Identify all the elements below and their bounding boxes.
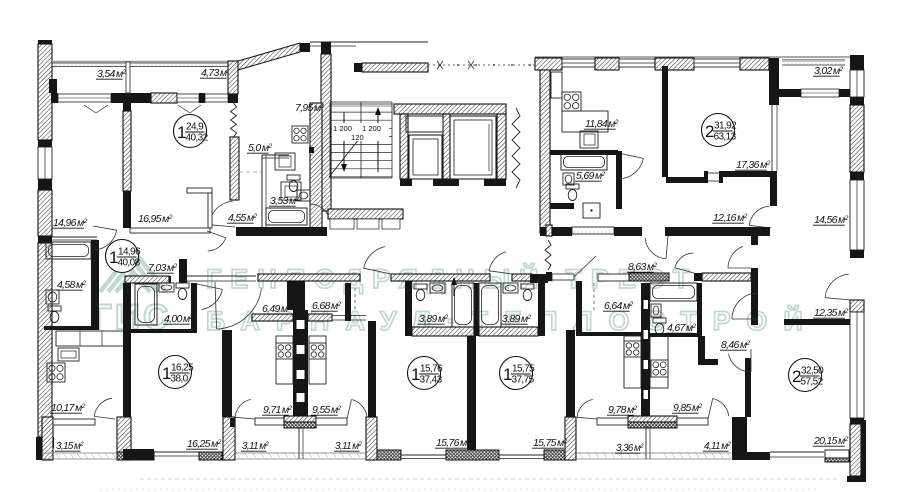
svg-text:1 200: 1 200: [333, 124, 352, 133]
svg-text:3,54 м2: 3,54 м2: [97, 68, 127, 80]
svg-text:15,76 м2: 15,76 м2: [436, 437, 471, 449]
svg-text:3,89 м2: 3,89 м2: [502, 313, 532, 325]
svg-text:4,67 м2: 4,67 м2: [667, 322, 697, 334]
svg-text:3,02 м2: 3,02 м2: [814, 65, 844, 77]
svg-text:3,15 м2: 3,15 м2: [56, 441, 84, 452]
svg-text:3,11 м2: 3,11 м2: [335, 441, 362, 452]
svg-text:10,17 м2: 10,17 м2: [51, 402, 86, 414]
svg-text:15,76: 15,76: [420, 364, 443, 375]
svg-text:9,78 м2: 9,78 м2: [608, 404, 638, 416]
svg-text:6,64 м2: 6,64 м2: [604, 300, 634, 312]
svg-text:17,36 м2: 17,36 м2: [736, 159, 771, 171]
svg-text:14,96 м2: 14,96 м2: [53, 217, 88, 229]
svg-text:15,75: 15,75: [512, 364, 535, 375]
svg-text:3,89 м2: 3,89 м2: [419, 313, 449, 325]
svg-text:15,75 м2: 15,75 м2: [533, 437, 568, 449]
svg-text:4,58 м2: 4,58 м2: [57, 279, 87, 291]
svg-text:12,16 м2: 12,16 м2: [713, 212, 748, 224]
svg-text:37,43: 37,43: [420, 375, 443, 386]
svg-text:4,73 м2: 4,73 м2: [201, 67, 231, 79]
svg-text:4,55 м2: 4,55 м2: [228, 212, 258, 224]
svg-text:6,68 м2: 6,68 м2: [312, 300, 342, 312]
svg-text:57,52: 57,52: [801, 377, 824, 388]
svg-text:9,55 м2: 9,55 м2: [312, 404, 342, 416]
svg-text:7,95 м2: 7,95 м2: [295, 102, 325, 114]
svg-text:9,71 м2: 9,71 м2: [263, 404, 293, 416]
svg-text:16,25 м2: 16,25 м2: [187, 438, 222, 450]
svg-text:7,03 м2: 7,03 м2: [148, 262, 178, 274]
svg-text:9,85 м2: 9,85 м2: [673, 402, 703, 414]
svg-text:3,53 м2: 3,53 м2: [270, 195, 300, 207]
svg-text:37,75: 37,75: [512, 375, 535, 386]
svg-text:5,69 м2: 5,69 м2: [576, 170, 606, 182]
svg-text:32,50: 32,50: [801, 366, 824, 377]
svg-text:63,13: 63,13: [714, 132, 737, 143]
svg-text:3,36 м2: 3,36 м2: [616, 443, 644, 454]
svg-text:31,92: 31,92: [714, 121, 737, 132]
svg-text:11,84 м2: 11,84 м2: [585, 118, 619, 130]
svg-text:40,32: 40,32: [186, 133, 209, 144]
svg-text:8,63 м2: 8,63 м2: [628, 261, 658, 273]
svg-text:14,56 м2: 14,56 м2: [814, 214, 849, 226]
svg-text:6,49 м2: 6,49 м2: [262, 303, 292, 315]
svg-text:8,46 м2: 8,46 м2: [721, 339, 751, 351]
svg-text:16,25: 16,25: [171, 363, 194, 374]
svg-text:40,08: 40,08: [118, 258, 141, 269]
svg-text:14,96: 14,96: [118, 247, 141, 258]
svg-text:1 200: 1 200: [362, 124, 381, 133]
svg-text:38,0: 38,0: [171, 374, 189, 385]
svg-text:16,95 м2: 16,95 м2: [138, 213, 173, 225]
svg-text:3,11 м2: 3,11 м2: [242, 441, 269, 452]
svg-text:4,11 м2: 4,11 м2: [704, 441, 731, 452]
svg-text:12,35 м2: 12,35 м2: [814, 307, 849, 319]
svg-text:4,00 м2: 4,00 м2: [164, 313, 194, 325]
svg-text:24,9: 24,9: [186, 122, 204, 133]
svg-text:120: 120: [351, 133, 364, 142]
svg-text:20,15 м2: 20,15 м2: [813, 435, 849, 447]
